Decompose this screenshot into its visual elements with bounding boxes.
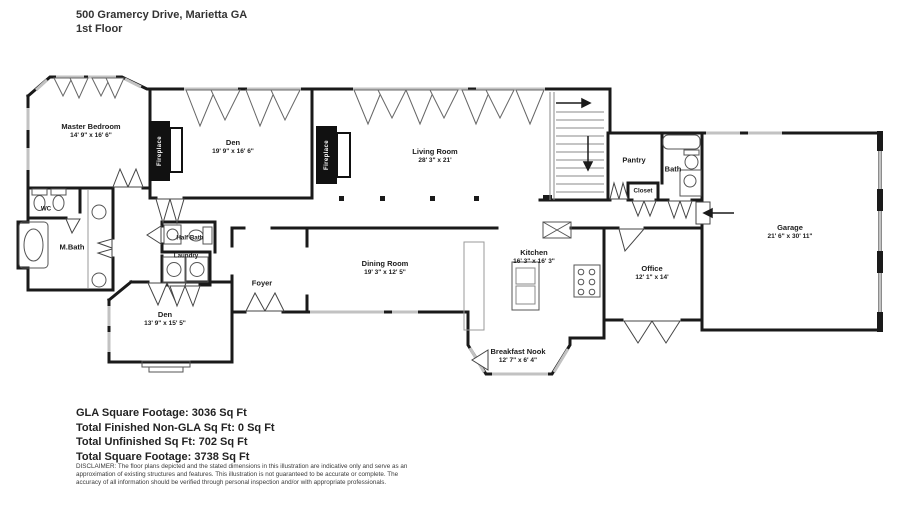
fireplace-label-2: Fireplace [324,140,330,170]
fireplace-label-1: Fireplace [157,136,163,166]
fixtures [19,135,701,372]
room-label-den-upper: Den 19' 9" x 16' 6" [212,139,254,156]
room-label-half-bath: Half Bath [175,234,205,241]
summary-line-gla: GLA Square Footage: 3036 Sq Ft [76,406,275,421]
room-label-breakfast-nook: Breakfast Nook 12' 7" x 6' 4" [490,348,545,365]
room-label-foyer: Foyer [252,280,272,289]
room-label-den-lower: Den 13' 9" x 15' 5" [144,311,186,328]
room-label-office: Office 12' 1" x 14' [635,265,668,282]
room-label-closet: Closet [634,187,653,194]
room-label-dining-room: Dining Room 19' 3" x 12' 5" [362,260,409,277]
garage-entry-door [696,202,734,224]
stairs [550,92,604,200]
footage-summary: GLA Square Footage: 3036 Sq Ft Total Fin… [76,406,275,464]
summary-line-non-gla: Total Finished Non-GLA Sq Ft: 0 Sq Ft [76,421,275,436]
stairs-up-arrow-icon [556,99,590,107]
floor-plan-page: 500 Gramercy Drive, Marietta GA 1st Floo… [0,0,900,506]
summary-line-total: Total Square Footage: 3738 Sq Ft [76,450,275,465]
room-label-kitchen: Kitchen 16' 3" x 16' 3" [513,249,555,266]
room-label-master-bath: M.Bath [60,244,85,253]
room-label-laundry: Laundry [174,252,198,259]
room-label-wc: WC [41,205,51,212]
column-markers [339,195,552,201]
walls [18,77,880,374]
room-label-bath: Bath [665,166,682,175]
disclaimer-text: DISCLAIMER: The floor plans depicted and… [76,463,408,487]
entry-arrow-icon [704,209,734,217]
window-valances [54,78,544,126]
stairs-down-arrow-icon [584,136,592,170]
summary-line-unfinished: Total Unfinished Sq Ft: 702 Sq Ft [76,435,275,450]
room-label-living-room: Living Room 28' 3" x 21' [412,148,457,165]
room-label-garage: Garage 21' 6" x 30' 11" [767,224,812,241]
room-label-pantry: Pantry [622,157,645,166]
room-label-master-bedroom: Master Bedroom 14' 9" x 16' 6" [61,123,120,140]
